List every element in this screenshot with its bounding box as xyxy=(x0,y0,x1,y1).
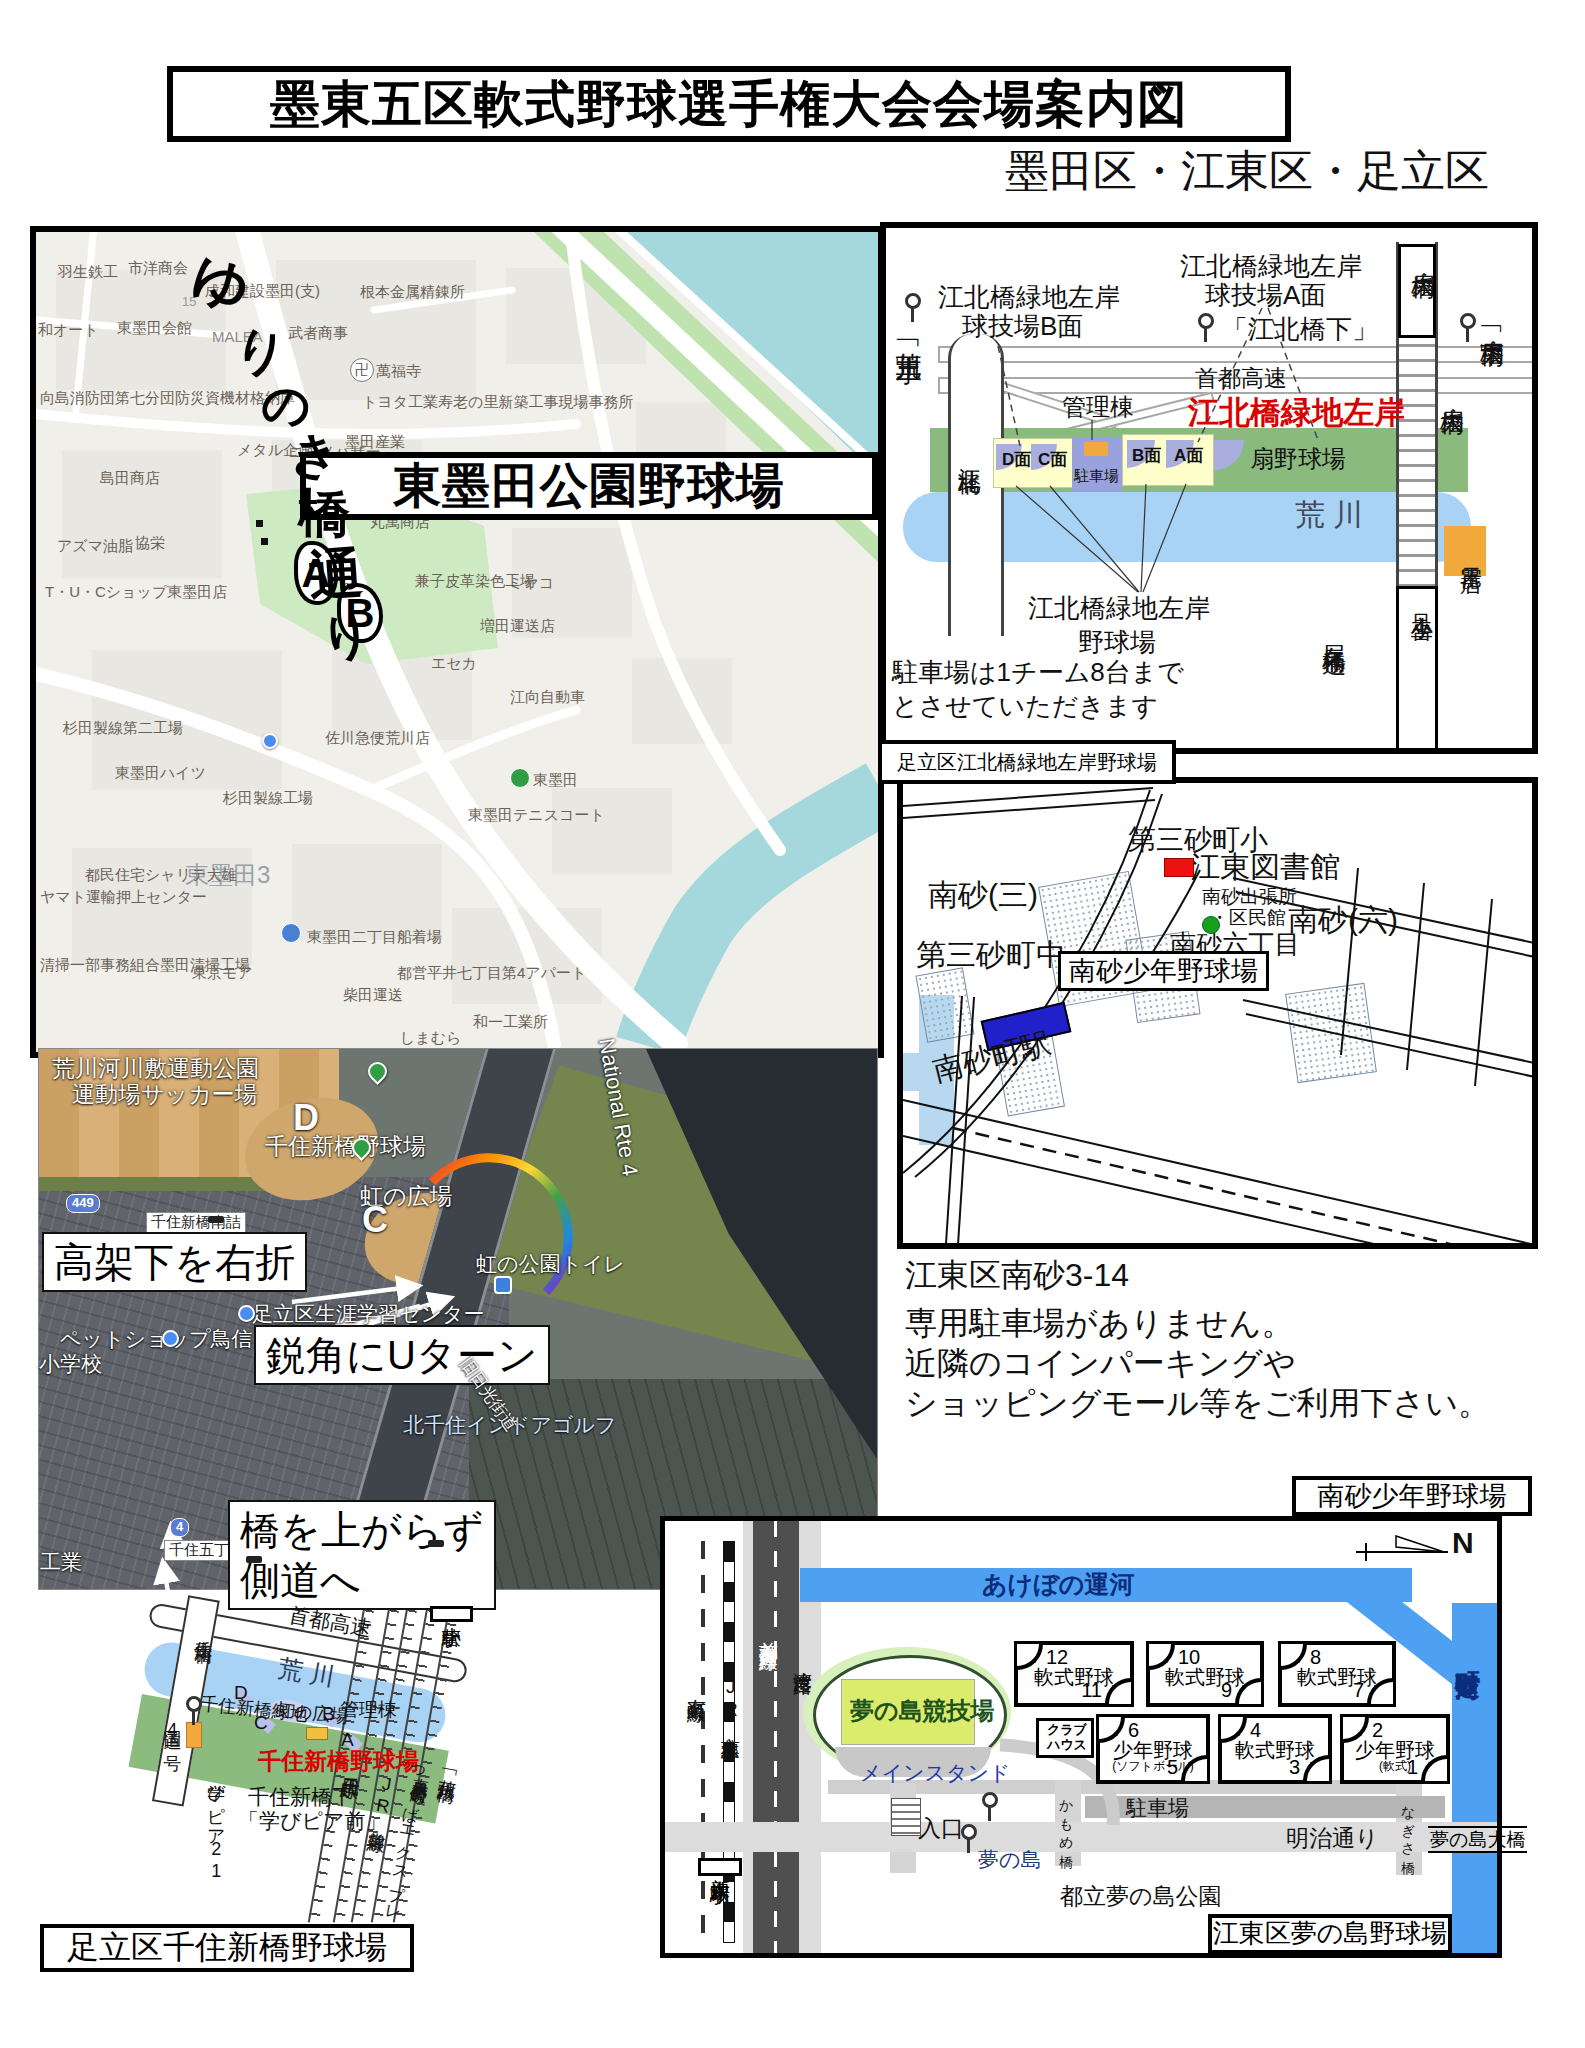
page-subtitle: 墨田区・江東区・足立区 xyxy=(1005,146,1489,195)
address-minamisuna: 江東区南砂3-14 xyxy=(905,1258,1129,1294)
map-higashisumida xyxy=(30,226,884,1058)
venue-guide-page: 墨東五区軟式野球選手権大会会場案内図 墨田区・江東区・足立区 和オート羽生鉄工市… xyxy=(0,0,1585,2048)
caption-senju: 足立区千住新橋野球場 xyxy=(40,1924,414,1972)
steps-icon xyxy=(891,1798,921,1836)
map-minamisuna xyxy=(897,777,1538,1249)
map-label: ショッピングモール等をご利用下さい。 xyxy=(905,1386,1490,1422)
satellite-senju xyxy=(38,1048,878,1590)
caption-minamisuna: 南砂少年野球場 xyxy=(1292,1476,1532,1516)
electronics-store xyxy=(1444,526,1486,576)
admin-building xyxy=(306,1727,328,1740)
map-kohoku xyxy=(880,222,1538,754)
highway-road xyxy=(938,346,1538,363)
map-label: 「学びピア前」 xyxy=(238,1809,386,1833)
ogi-bridge-label-box xyxy=(1398,244,1436,338)
map-label: 専用駐車場がありません。 xyxy=(905,1306,1294,1342)
page-title: 墨東五区軟式野球選手権大会会場案内図 xyxy=(167,66,1291,142)
map-label: 近隣のコインパーキングや xyxy=(905,1346,1296,1382)
map-yumenoshima xyxy=(660,1516,1502,1958)
manabi-pia-building xyxy=(186,1722,202,1748)
map-label: 学びピア21 xyxy=(206,1770,226,1883)
ramp-linework xyxy=(665,1521,1502,1953)
adachi-odai-station-box xyxy=(1396,586,1438,752)
map-linework xyxy=(36,232,878,1052)
admin-building xyxy=(1084,442,1108,456)
